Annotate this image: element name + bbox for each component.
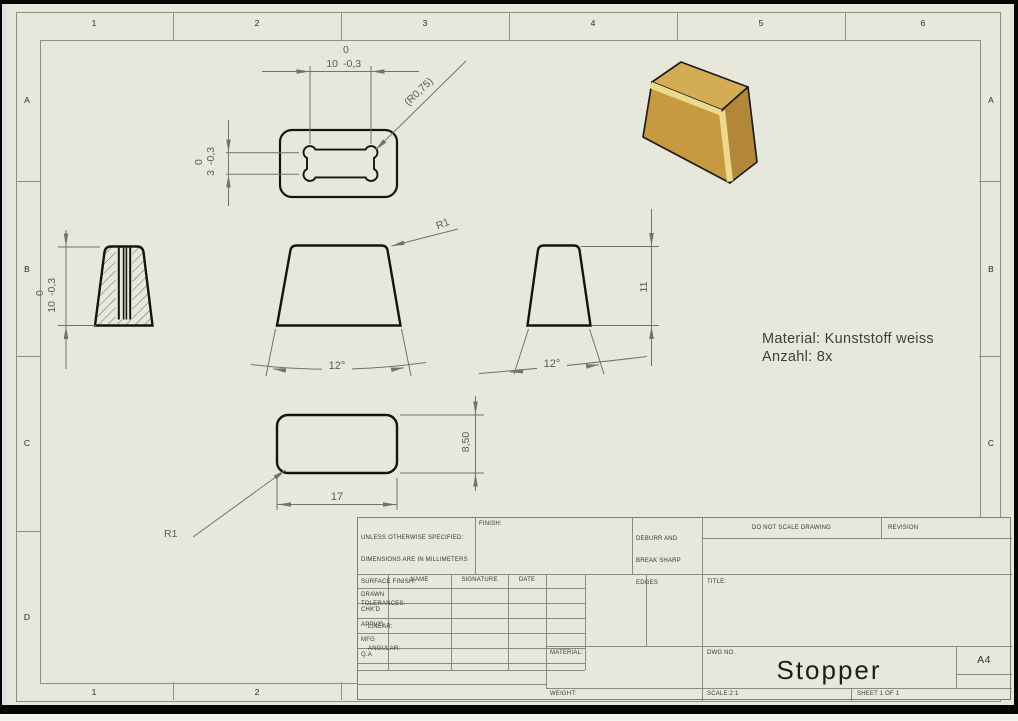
tb-line bbox=[358, 670, 585, 671]
tb-line bbox=[546, 688, 1012, 689]
dim-front-angle-text: 12° bbox=[329, 360, 346, 372]
spec-line: UNLESS OTHERWISE SPECIFIED: bbox=[361, 535, 468, 542]
weight-label: WEIGHT: bbox=[550, 691, 576, 698]
name-column-header: NAME bbox=[388, 577, 451, 584]
tb-line bbox=[546, 574, 547, 688]
dim-front-radius-text: R1 bbox=[434, 216, 451, 232]
signature-column-header: SIGNATURE bbox=[451, 577, 508, 584]
svg-text:0: 0 bbox=[343, 44, 349, 56]
dim-section-height-text: 10 0 -0,3 bbox=[34, 278, 58, 313]
title-block: UNLESS OTHERWISE SPECIFIED: DIMENSIONS A… bbox=[357, 517, 1011, 700]
dim-bottom-depth-text: 8,50 bbox=[460, 432, 472, 453]
tb-line bbox=[851, 688, 852, 701]
tb-line bbox=[632, 518, 633, 574]
deburr-line: EDGES bbox=[636, 580, 681, 587]
svg-text:10: 10 bbox=[326, 58, 338, 70]
bottom-view bbox=[277, 415, 397, 473]
title-label: TITLE: bbox=[707, 579, 726, 586]
sheet-label: SHEET 1 OF 1 bbox=[857, 691, 899, 698]
svg-text:0: 0 bbox=[34, 290, 46, 296]
drawing-sheet: { "sheet": { "zones": { "columns": ["1",… bbox=[0, 0, 1018, 721]
material-note-line2: Anzahl: 8x bbox=[762, 348, 934, 366]
dim-side-height-text: 11 bbox=[638, 281, 650, 292]
front-view bbox=[277, 246, 401, 326]
tb-line bbox=[702, 538, 1012, 539]
deburr-note: DEBURR AND BREAK SHARP EDGES bbox=[636, 521, 681, 602]
paper-size: A4 bbox=[956, 654, 1012, 666]
deburr-line: BREAK SHARP bbox=[636, 558, 681, 565]
material-note-line1: Material: Kunststoff weiss bbox=[762, 330, 934, 348]
dim-top-slot-height-text: 3 0 -0,3 bbox=[193, 147, 217, 176]
dim-slot-radius-text: (R0,75) bbox=[402, 75, 436, 108]
tb-line bbox=[956, 674, 1012, 675]
section-view bbox=[95, 247, 153, 326]
tb-line bbox=[546, 646, 1012, 647]
row-label-qa: Q.A bbox=[361, 652, 372, 659]
iso-view bbox=[643, 62, 757, 183]
dim-bottom-width-text: 17 bbox=[331, 491, 343, 503]
scale-label: SCALE:2:1 bbox=[707, 691, 738, 698]
row-label-chkd: CHK'D bbox=[361, 607, 380, 614]
row-label-drawn: DRAWN bbox=[361, 592, 384, 599]
finish-label: FINISH: bbox=[479, 521, 502, 528]
dim-side-angle-text: 12° bbox=[544, 358, 561, 370]
tb-line bbox=[508, 574, 509, 670]
material-label: MATERIAL: bbox=[550, 650, 583, 657]
svg-text:-0,3: -0,3 bbox=[46, 278, 58, 296]
revision-label: REVISION bbox=[888, 525, 918, 532]
date-column-header: DATE bbox=[508, 577, 546, 584]
top-view bbox=[280, 130, 397, 197]
deburr-line: DEBURR AND bbox=[636, 536, 681, 543]
row-label-mfg: MFG bbox=[361, 637, 375, 644]
spec-line: DIMENSIONS ARE IN MILLIMETERS bbox=[361, 557, 468, 564]
tb-line bbox=[956, 646, 957, 688]
svg-text:0: 0 bbox=[193, 159, 205, 165]
svg-text:-0,3: -0,3 bbox=[205, 147, 217, 165]
drawing-title: Stopper bbox=[702, 654, 956, 686]
tb-line bbox=[881, 518, 882, 538]
tb-line bbox=[585, 574, 586, 670]
tb-line bbox=[475, 518, 476, 574]
svg-text:10: 10 bbox=[46, 301, 58, 313]
dim-top-width-text: 10 0 -0,3 bbox=[326, 44, 361, 70]
do-not-scale-label: DO NOT SCALE DRAWING bbox=[702, 525, 881, 532]
spec-line: ANGULAR: bbox=[361, 646, 468, 653]
material-note: Material: Kunststoff weiss Anzahl: 8x bbox=[762, 330, 934, 366]
side-view bbox=[528, 246, 591, 326]
dim-bottom-radius-text: R1 bbox=[164, 528, 178, 540]
row-label-appvd: APPV'D bbox=[361, 622, 384, 629]
svg-text:-0,3: -0,3 bbox=[343, 58, 361, 70]
svg-text:3: 3 bbox=[205, 170, 217, 176]
tb-line bbox=[358, 684, 546, 685]
